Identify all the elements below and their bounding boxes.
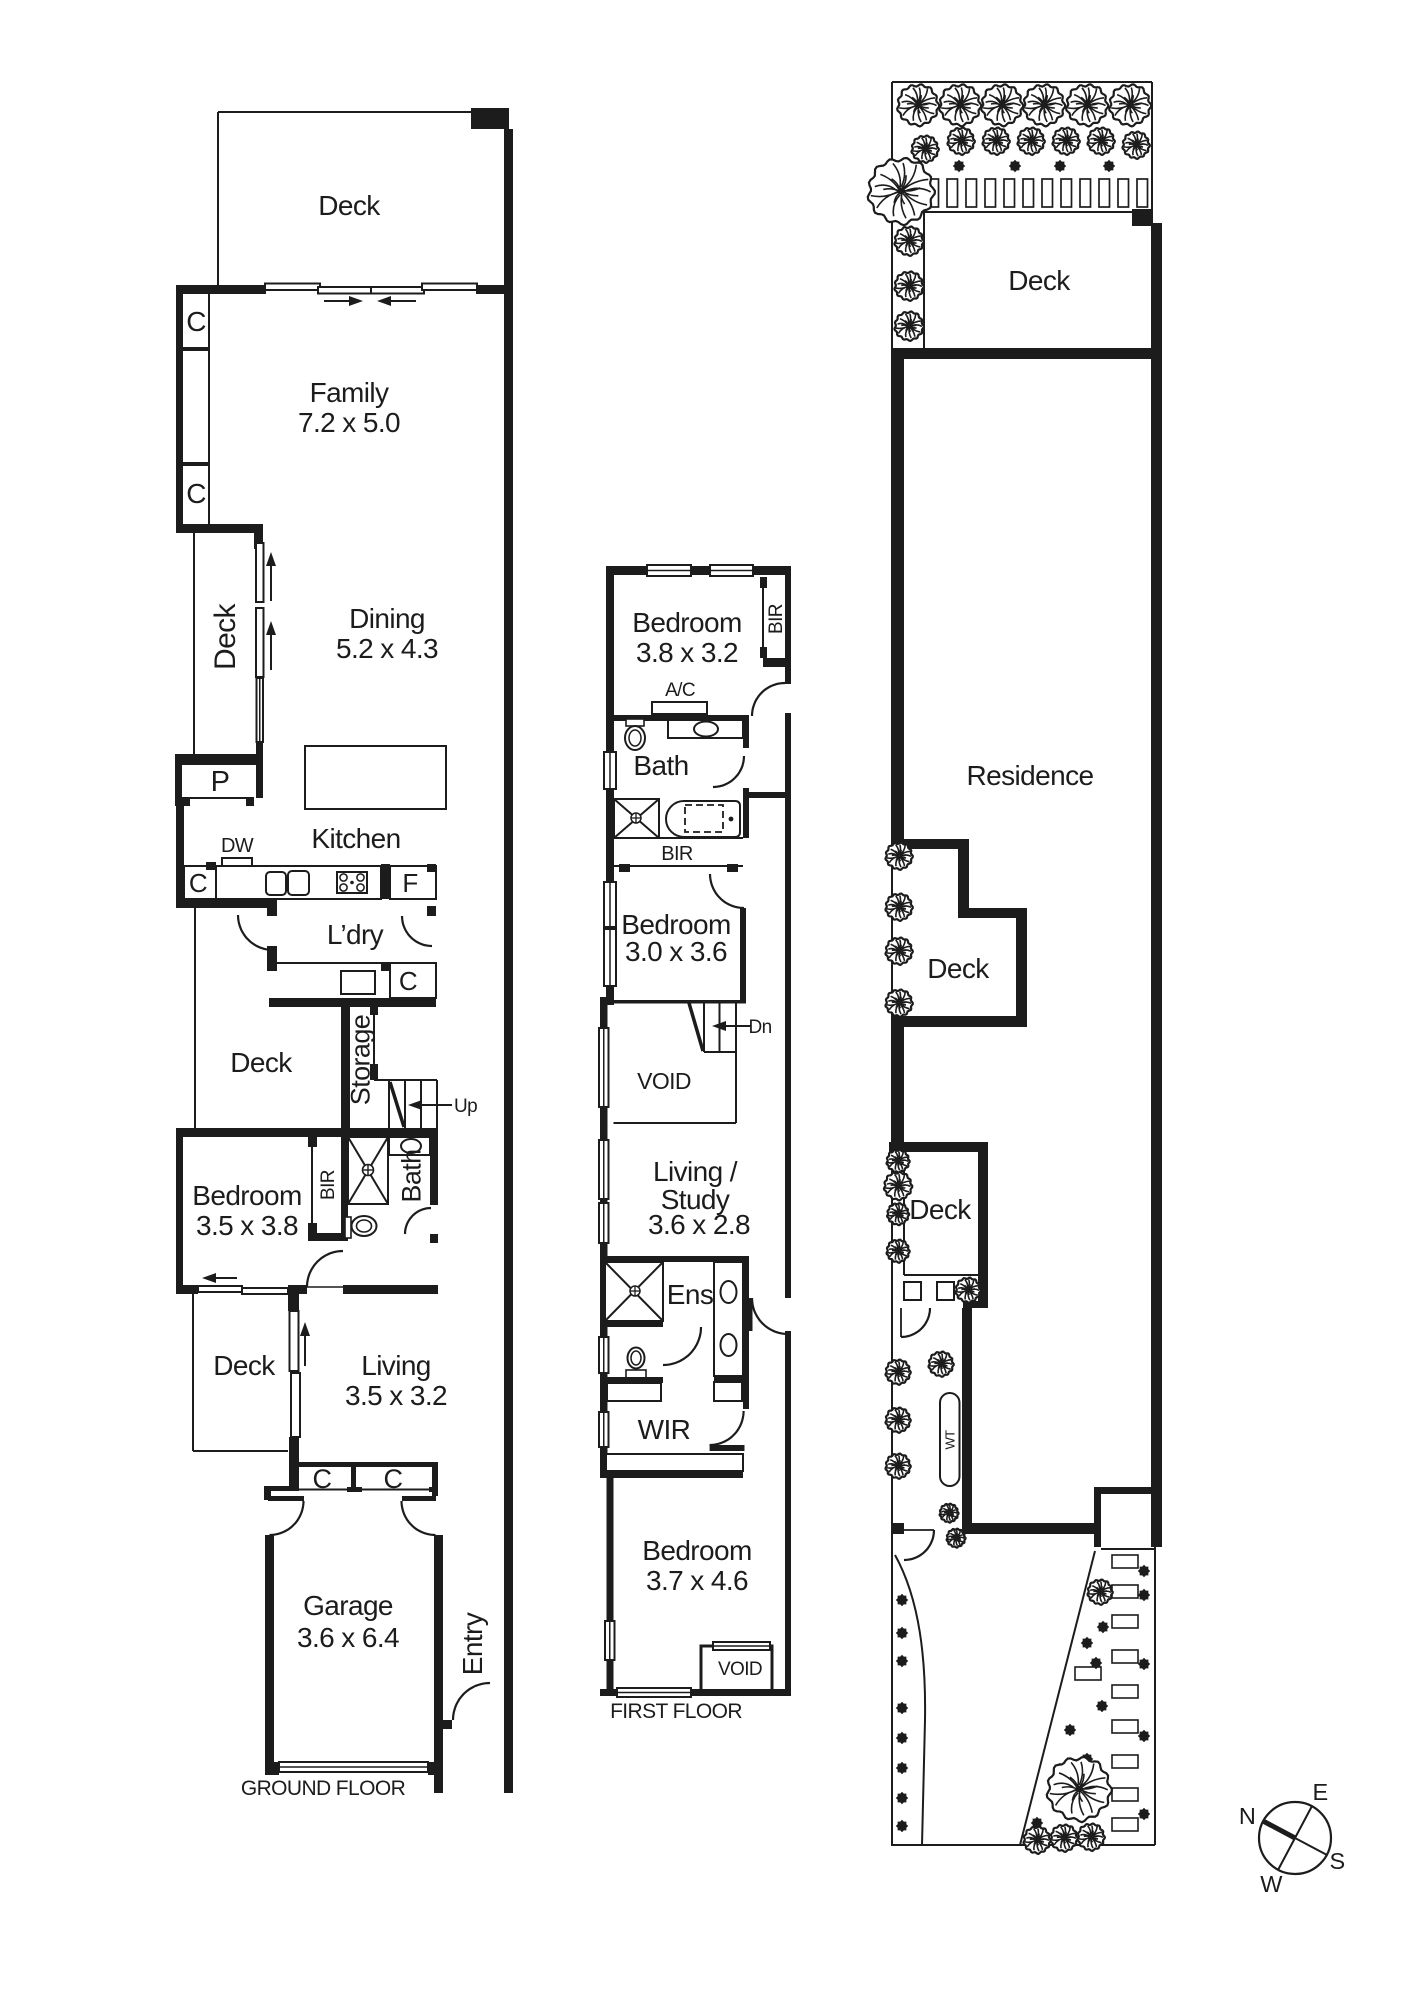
svg-text:Garage: Garage — [303, 1590, 393, 1621]
svg-text:C: C — [313, 1464, 332, 1494]
svg-text:3.6 x 2.8: 3.6 x 2.8 — [648, 1209, 750, 1240]
svg-text:W: W — [1260, 1871, 1283, 1897]
svg-text:VOID: VOID — [637, 1068, 691, 1094]
svg-text:L’dry: L’dry — [327, 919, 384, 950]
svg-text:S: S — [1329, 1848, 1344, 1874]
svg-text:5.2 x 4.3: 5.2 x 4.3 — [336, 633, 438, 664]
svg-text:C: C — [189, 868, 207, 898]
svg-text:BIR: BIR — [766, 604, 787, 634]
svg-text:Entry: Entry — [457, 1612, 488, 1675]
svg-text:C: C — [186, 478, 206, 509]
svg-text:Ens: Ens — [667, 1279, 713, 1310]
svg-text:Deck: Deck — [209, 602, 242, 670]
svg-text:FIRST FLOOR: FIRST FLOOR — [610, 1700, 742, 1723]
svg-text:Deck: Deck — [1008, 265, 1071, 296]
svg-text:Deck: Deck — [213, 1350, 276, 1381]
svg-text:3.0 x 3.6: 3.0 x 3.6 — [625, 936, 727, 967]
svg-text:GROUND FLOOR: GROUND FLOOR — [241, 1777, 406, 1800]
svg-text:Dining: Dining — [349, 603, 425, 634]
svg-text:BIR: BIR — [661, 843, 693, 865]
svg-text:Dn: Dn — [748, 1017, 771, 1038]
svg-text:Storage: Storage — [346, 1015, 376, 1105]
svg-text:WIR: WIR — [638, 1414, 691, 1445]
svg-text:Up: Up — [454, 1096, 477, 1117]
svg-text:A/C: A/C — [665, 680, 695, 701]
svg-text:Deck: Deck — [927, 953, 990, 984]
svg-text:Family: Family — [310, 377, 389, 408]
svg-text:Kitchen: Kitchen — [311, 823, 400, 854]
svg-text:P: P — [211, 766, 230, 798]
svg-text:Bath: Bath — [633, 750, 688, 781]
svg-text:Bedroom: Bedroom — [642, 1535, 751, 1566]
svg-text:BIR: BIR — [318, 1170, 339, 1200]
svg-text:DW: DW — [221, 835, 254, 857]
svg-text:3.8 x 3.2: 3.8 x 3.2 — [636, 637, 738, 668]
svg-text:3.6 x 6.4: 3.6 x 6.4 — [297, 1622, 399, 1653]
svg-text:F: F — [402, 868, 417, 898]
svg-text:Living /: Living / — [653, 1156, 738, 1187]
svg-text:Bath: Bath — [397, 1149, 427, 1202]
svg-text:C: C — [384, 1464, 403, 1494]
svg-text:Deck: Deck — [909, 1194, 972, 1225]
svg-text:3.7 x 4.6: 3.7 x 4.6 — [646, 1565, 748, 1596]
svg-text:WT: WT — [943, 1430, 958, 1450]
svg-text:C: C — [186, 306, 206, 337]
svg-text:Residence: Residence — [967, 760, 1094, 791]
svg-text:Deck: Deck — [318, 190, 381, 221]
svg-text:3.5 x 3.8: 3.5 x 3.8 — [196, 1210, 298, 1241]
svg-text:E: E — [1312, 1779, 1327, 1805]
svg-text:Bedroom: Bedroom — [632, 607, 741, 638]
svg-text:N: N — [1239, 1803, 1255, 1829]
svg-text:C: C — [399, 966, 417, 996]
svg-text:Living: Living — [361, 1350, 431, 1381]
svg-text:Deck: Deck — [230, 1047, 293, 1078]
svg-text:3.5 x 3.2: 3.5 x 3.2 — [345, 1380, 447, 1411]
svg-text:7.2 x 5.0: 7.2 x 5.0 — [298, 407, 400, 438]
svg-text:Bedroom: Bedroom — [192, 1180, 301, 1211]
svg-text:VOID: VOID — [718, 1659, 762, 1680]
